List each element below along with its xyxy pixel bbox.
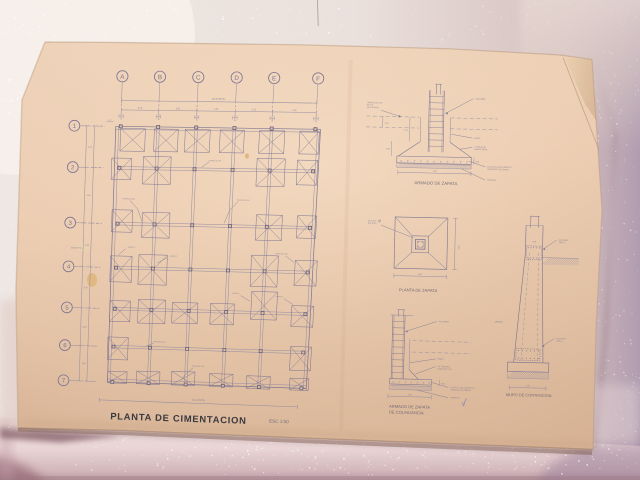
svg-text:0.40: 0.40 <box>385 123 389 125</box>
svg-text:.30: .30 <box>271 120 273 122</box>
svg-text:0.40: 0.40 <box>92 346 95 348</box>
svg-text:ZAPATA 1: ZAPATA 1 <box>276 295 284 298</box>
svg-text:F: F <box>316 76 320 83</box>
svg-text:0.30: 0.30 <box>475 161 479 163</box>
svg-text:TRABE DE LIGA: TRABE DE LIGA <box>237 199 251 202</box>
svg-text:1.20: 1.20 <box>108 120 111 122</box>
svg-text:ZAPATA 1: ZAPATA 1 <box>128 246 136 249</box>
svg-text:20.00 MTS.: 20.00 MTS. <box>71 247 82 249</box>
svg-text:TERRENO: TERRENO <box>450 397 460 399</box>
svg-text:DE COLINDANCIA: DE COLINDANCIA <box>389 409 424 415</box>
svg-text:0.40: 0.40 <box>91 381 94 383</box>
svg-text:ZAPATA 1: ZAPATA 1 <box>232 292 240 295</box>
svg-text:ARM. E: ARM. E <box>559 241 566 244</box>
svg-text:TRABE DE LIGA: TRABE DE LIGA <box>192 364 206 367</box>
svg-text:PLANTA DE ZAPATA: PLANTA DE ZAPATA <box>399 287 438 293</box>
svg-text:C: C <box>196 74 201 81</box>
svg-text:0.40: 0.40 <box>95 267 98 269</box>
svg-text:D: D <box>234 75 239 82</box>
svg-text:TRABE DE LIGA: TRABE DE LIGA <box>122 197 136 200</box>
svg-text:ZAPATA 2: ZAPATA 2 <box>170 255 178 258</box>
svg-text:TRABE DE LIGA: TRABE DE LIGA <box>275 252 289 255</box>
svg-text:COLUMNA: COLUMNA <box>439 320 450 323</box>
svg-text:ESC 1:50: ESC 1:50 <box>269 419 289 425</box>
svg-text:DADO: DADO <box>438 358 444 361</box>
svg-text:1.5: 1.5 <box>271 116 273 118</box>
svg-text:1.5: 1.5 <box>157 115 159 117</box>
svg-text:VARIOS 30 X 45: VARIOS 30 X 45 <box>437 367 451 370</box>
svg-text:TRABE DE LIGA: TRABE DE LIGA <box>209 159 223 162</box>
svg-text:TRABE DE LIGA: TRABE DE LIGA <box>153 340 167 343</box>
svg-text:19.20 MTS.: 19.20 MTS. <box>212 97 226 101</box>
svg-text:19.20 MTS.: 19.20 MTS. <box>192 398 206 402</box>
svg-text:E: E <box>272 75 276 82</box>
svg-text:COLUMNA: COLUMNA <box>475 98 486 101</box>
svg-text:TERRENO: TERRENO <box>487 180 497 182</box>
svg-text:.30: .30 <box>157 119 159 121</box>
svg-text:1.5: 1.5 <box>120 114 122 116</box>
svg-text:VARIOS 30x45: VARIOS 30x45 <box>474 148 487 151</box>
svg-text:DADO: DADO <box>474 137 480 140</box>
svg-text:.30: .30 <box>120 118 122 120</box>
svg-text:0.30: 0.30 <box>532 241 536 243</box>
svg-text:(VER PLANO): (VER PLANO) <box>367 106 380 109</box>
svg-text:.30: .30 <box>315 121 317 123</box>
svg-text:0.75: 0.75 <box>404 130 408 132</box>
svg-text:.30: .30 <box>234 120 236 122</box>
svg-text:ARM. E: ARM. E <box>556 340 563 343</box>
svg-text:6x6 10/10: 6x6 10/10 <box>368 223 376 225</box>
svg-text:0.40: 0.40 <box>96 223 99 225</box>
svg-text:0.30: 0.30 <box>441 383 445 385</box>
svg-text:JARDIN: JARDIN <box>495 320 503 323</box>
svg-text:0.40: 0.40 <box>98 167 101 169</box>
svg-text:.30: .30 <box>195 119 197 121</box>
svg-text:0.40: 0.40 <box>99 126 102 128</box>
svg-text:PISO/CIM DE TABIQUE: PISO/CIM DE TABIQUE <box>450 388 471 392</box>
svg-text:ARMADO DE ZAPATA: ARMADO DE ZAPATA <box>414 180 457 186</box>
svg-text:1.5: 1.5 <box>315 117 317 119</box>
svg-text:1.5: 1.5 <box>234 116 236 118</box>
svg-text:CONCRETO DE ZAPATA: CONCRETO DE ZAPATA <box>487 168 509 172</box>
svg-text:0.85: 0.85 <box>386 148 390 150</box>
svg-text:B: B <box>158 74 162 81</box>
svg-text:0.40: 0.40 <box>93 308 96 310</box>
svg-text:1.5: 1.5 <box>196 115 198 117</box>
